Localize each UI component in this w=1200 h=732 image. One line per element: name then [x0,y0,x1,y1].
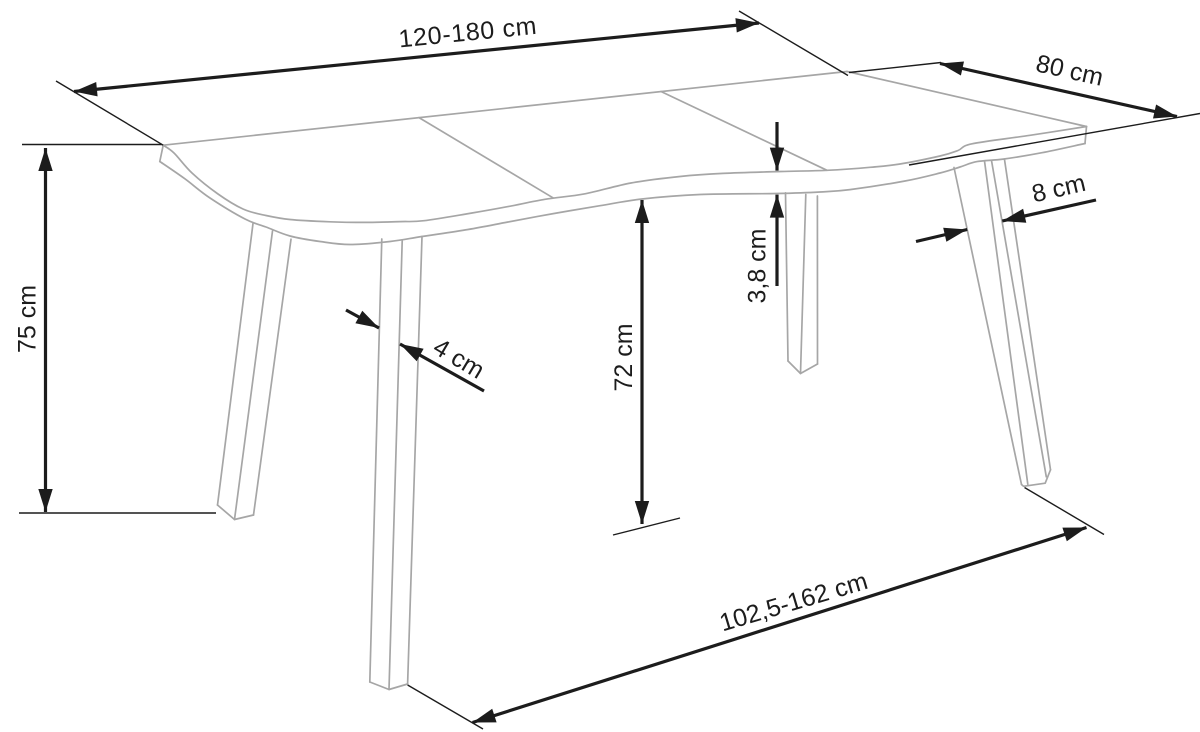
svg-text:3,8 cm: 3,8 cm [744,228,772,303]
svg-text:72 cm: 72 cm [610,323,638,391]
svg-text:75 cm: 75 cm [14,285,42,353]
